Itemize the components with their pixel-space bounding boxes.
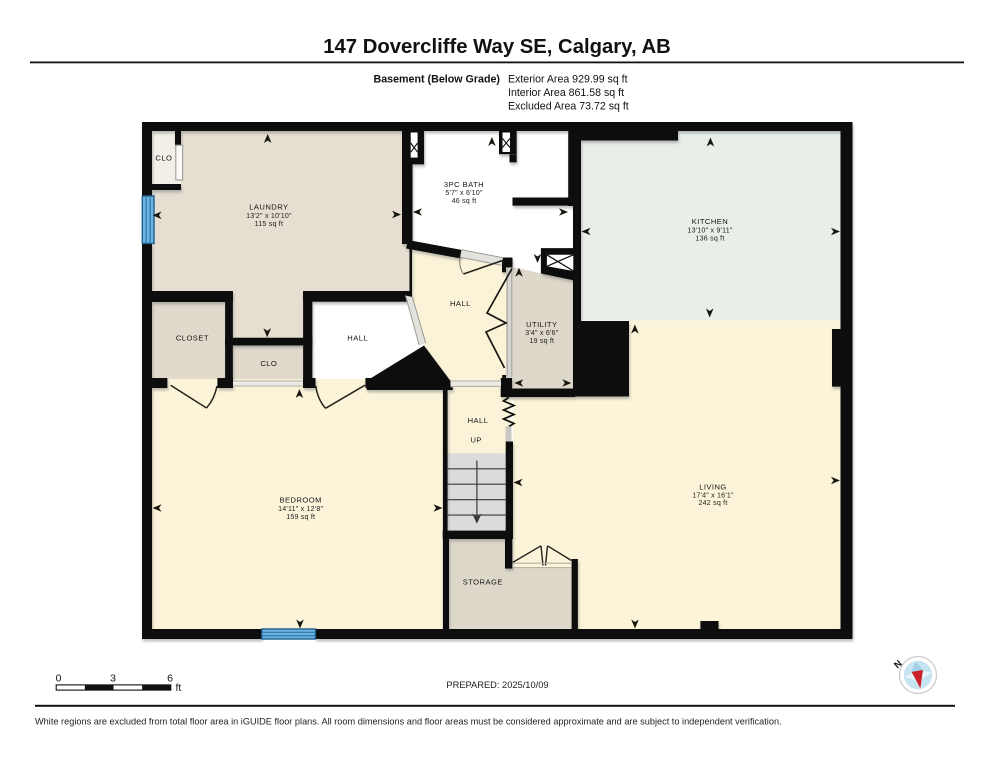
svg-text:STORAGE: STORAGE [463,577,503,586]
svg-text:3'4" x 6'6": 3'4" x 6'6" [525,329,558,337]
svg-text:6: 6 [167,673,173,685]
svg-text:CLOSET: CLOSET [176,333,209,342]
svg-text:CLO: CLO [260,359,277,368]
svg-text:BEDROOM: BEDROOM [280,496,322,505]
svg-text:13'10" x 9'11": 13'10" x 9'11" [687,226,732,234]
svg-text:3: 3 [110,673,116,685]
svg-text:136 sq ft: 136 sq ft [695,235,724,243]
svg-text:147 Dovercliffe Way SE, Calgar: 147 Dovercliffe Way SE, Calgary, AB [323,36,671,58]
svg-text:5'7" x 6'10": 5'7" x 6'10" [445,189,483,197]
svg-text:ft: ft [176,682,182,694]
svg-text:Basement (Below Grade): Basement (Below Grade) [373,74,500,86]
svg-text:White regions are excluded fro: White regions are excluded from total fl… [35,717,782,727]
svg-text:17'4" x 16'1": 17'4" x 16'1" [692,491,734,499]
svg-text:Excluded Area 73.72 sq ft: Excluded Area 73.72 sq ft [508,101,629,113]
svg-text:LAUNDRY: LAUNDRY [249,203,288,212]
svg-text:HALL: HALL [347,333,368,342]
svg-text:UTILITY: UTILITY [526,320,557,329]
svg-text:14'11" x 12'8": 14'11" x 12'8" [278,505,323,513]
svg-text:115 sq ft: 115 sq ft [255,220,283,228]
svg-text:HALL: HALL [450,299,471,308]
svg-text:159 sq ft: 159 sq ft [286,513,315,521]
svg-text:KITCHEN: KITCHEN [692,217,728,226]
svg-text:13'2" x 10'10": 13'2" x 10'10" [246,212,292,220]
svg-text:Interior Area 861.58 sq ft: Interior Area 861.58 sq ft [508,87,624,99]
svg-text:3PC BATH: 3PC BATH [444,180,484,189]
svg-text:0: 0 [56,673,62,685]
svg-text:19 sq ft: 19 sq ft [529,337,554,345]
svg-text:HALL: HALL [468,416,489,425]
svg-text:UP: UP [470,436,481,445]
svg-text:Exterior Area 929.99 sq ft: Exterior Area 929.99 sq ft [508,74,628,86]
svg-text:PREPARED: 2025/10/09: PREPARED: 2025/10/09 [446,680,548,690]
svg-text:CLO: CLO [155,154,172,163]
svg-text:LIVING: LIVING [699,483,727,492]
svg-text:46 sq ft: 46 sq ft [452,197,477,205]
svg-text:242 sq ft: 242 sq ft [698,499,727,507]
